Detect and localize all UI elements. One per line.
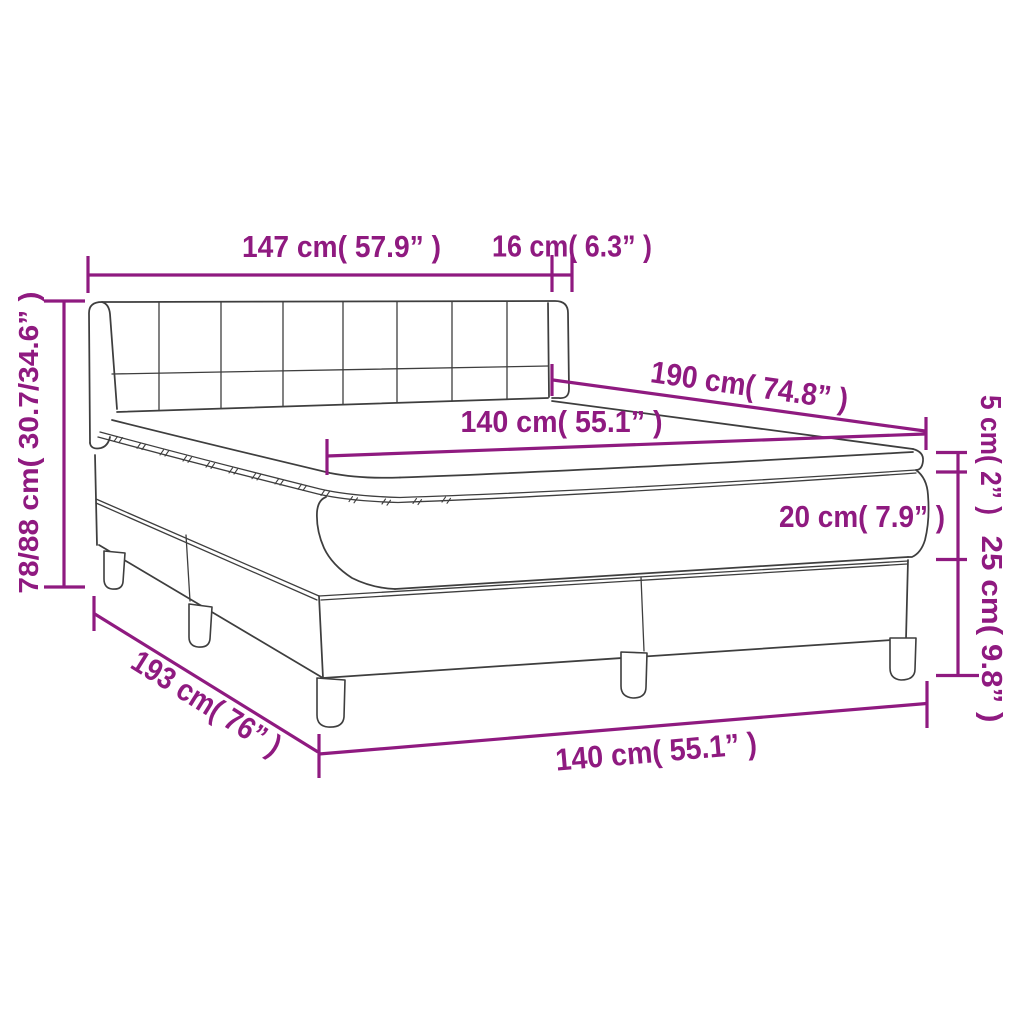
svg-text:140 cm( 55.1” ): 140 cm( 55.1” ) xyxy=(461,404,663,439)
svg-text:20 cm( 7.9” ): 20 cm( 7.9” ) xyxy=(779,499,945,534)
svg-text:25 cm( 9.8” ): 25 cm( 9.8” ) xyxy=(975,536,1007,723)
svg-text:78/88 cm( 30.7/34.6” ): 78/88 cm( 30.7/34.6” ) xyxy=(13,292,44,594)
svg-text:147 cm( 57.9” ): 147 cm( 57.9” ) xyxy=(242,229,441,264)
svg-text:5 cm( 2” ): 5 cm( 2” ) xyxy=(974,395,1006,515)
svg-text:16 cm( 6.3” ): 16 cm( 6.3” ) xyxy=(492,229,652,264)
svg-text:193 cm( 76” ): 193 cm( 76” ) xyxy=(125,643,288,763)
